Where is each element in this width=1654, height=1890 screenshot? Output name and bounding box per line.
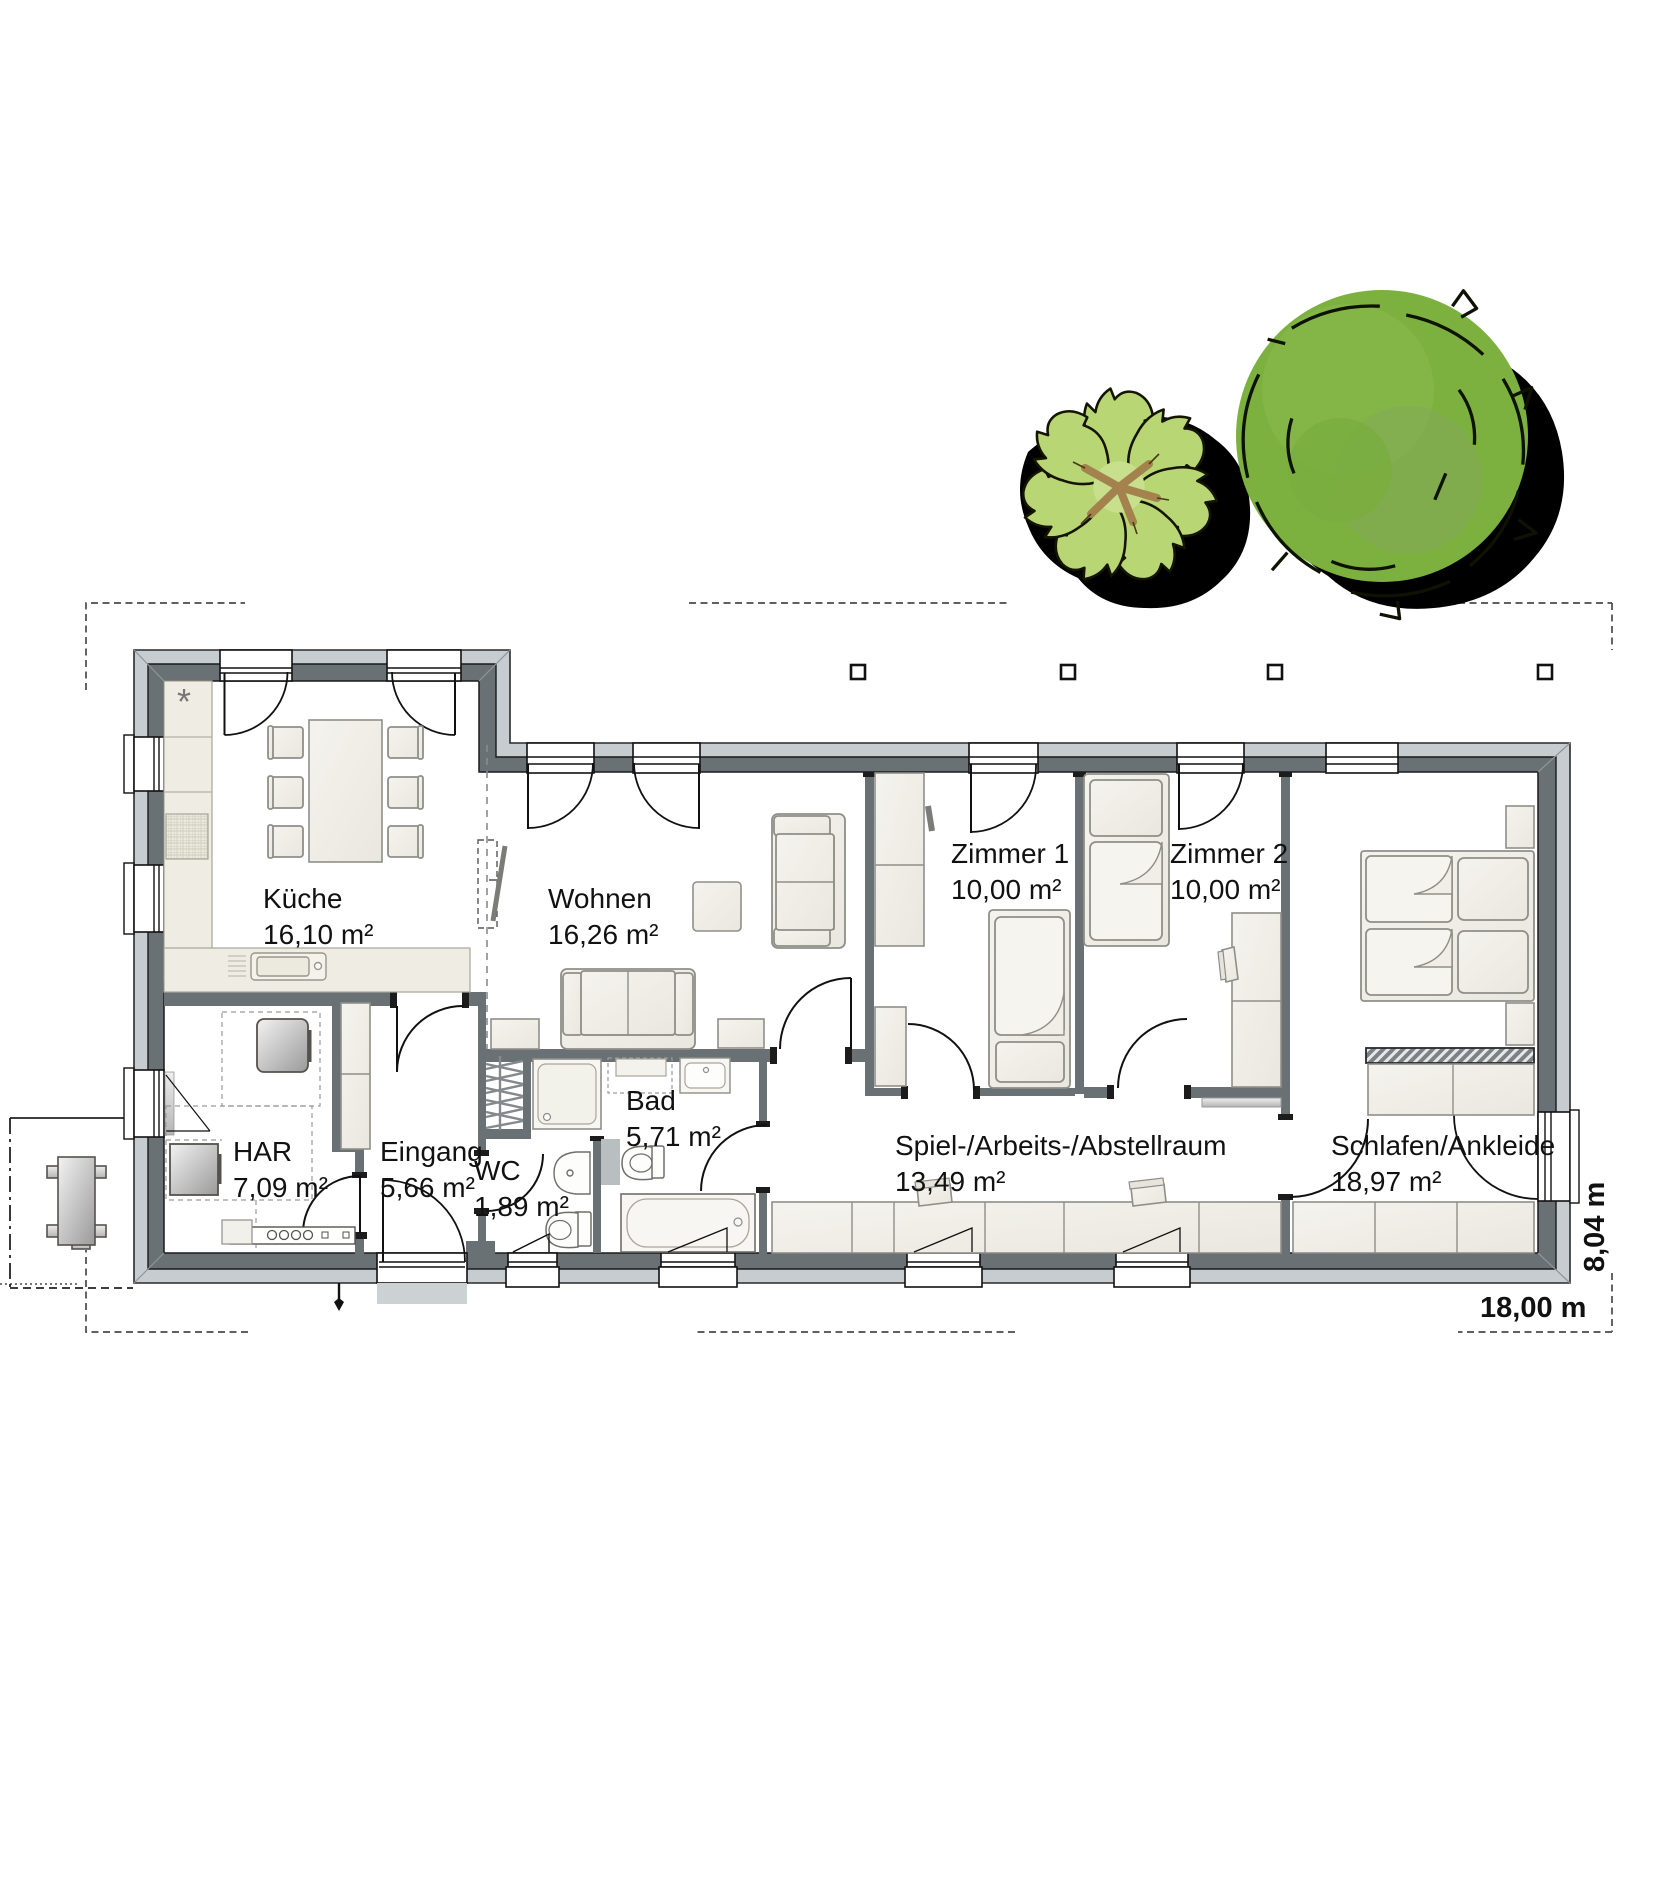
- svg-text:Eingang: Eingang: [380, 1136, 483, 1167]
- svg-text:Zimmer 1: Zimmer 1: [951, 838, 1069, 869]
- svg-text:1,89 m²: 1,89 m²: [474, 1191, 569, 1222]
- svg-text:Küche: Küche: [263, 883, 342, 914]
- svg-text:WC: WC: [474, 1155, 521, 1186]
- svg-text:10,00 m²: 10,00 m²: [951, 874, 1062, 905]
- svg-text:5,71 m²: 5,71 m²: [626, 1121, 721, 1152]
- svg-text:Zimmer 2: Zimmer 2: [1170, 838, 1288, 869]
- svg-text:Wohnen: Wohnen: [548, 883, 652, 914]
- svg-text:18,00 m: 18,00 m: [1480, 1292, 1586, 1324]
- svg-text:18,97 m²: 18,97 m²: [1331, 1166, 1442, 1197]
- svg-text:HAR: HAR: [233, 1136, 292, 1167]
- svg-text:*: *: [177, 681, 191, 722]
- svg-text:8,04 m: 8,04 m: [1579, 1182, 1611, 1272]
- svg-text:7,09 m²: 7,09 m²: [233, 1172, 328, 1203]
- svg-text:16,10 m²: 16,10 m²: [263, 919, 374, 950]
- svg-text:Spiel-/Arbeits-/Abstellraum: Spiel-/Arbeits-/Abstellraum: [895, 1130, 1226, 1161]
- svg-text:Schlafen/Ankleide: Schlafen/Ankleide: [1331, 1130, 1555, 1161]
- svg-text:Bad: Bad: [626, 1085, 676, 1116]
- svg-text:13,49 m²: 13,49 m²: [895, 1166, 1006, 1197]
- svg-text:5,66 m²: 5,66 m²: [380, 1172, 475, 1203]
- svg-text:10,00 m²: 10,00 m²: [1170, 874, 1281, 905]
- svg-text:16,26 m²: 16,26 m²: [548, 919, 659, 950]
